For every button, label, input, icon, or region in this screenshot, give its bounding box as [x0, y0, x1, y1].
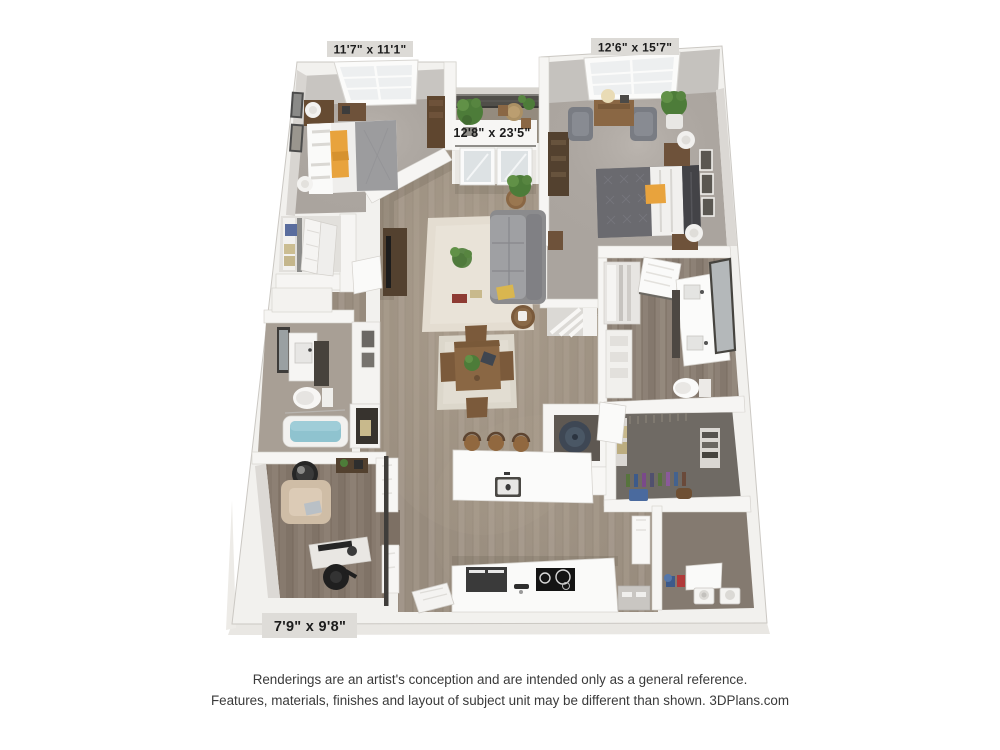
svg-text:7'9" x 9'8": 7'9" x 9'8" [274, 619, 346, 635]
svg-text:Features, materials, finishes: Features, materials, finishes and layout… [211, 693, 789, 708]
svg-text:12'6" x 15'7": 12'6" x 15'7" [598, 41, 672, 55]
svg-text:11'7" x 11'1": 11'7" x 11'1" [333, 43, 406, 57]
svg-text:12'8" x 23'5": 12'8" x 23'5" [453, 126, 530, 140]
svg-text:Renderings are an artist's con: Renderings are an artist's conception an… [253, 672, 748, 687]
